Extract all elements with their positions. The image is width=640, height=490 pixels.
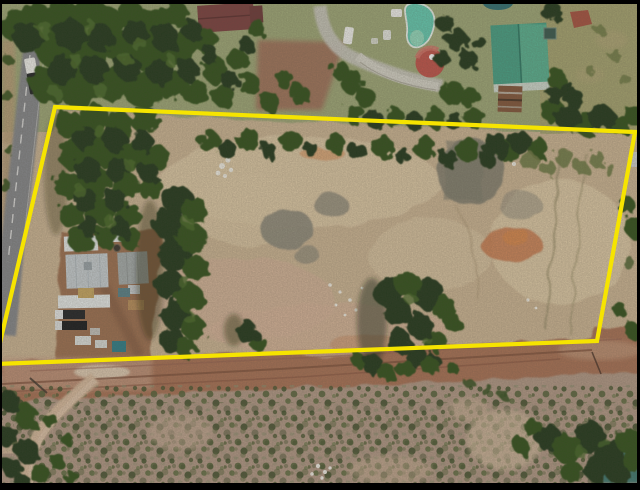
screenshot-root [0,0,640,490]
aerial-photo [0,0,640,490]
film-grain [2,4,638,483]
